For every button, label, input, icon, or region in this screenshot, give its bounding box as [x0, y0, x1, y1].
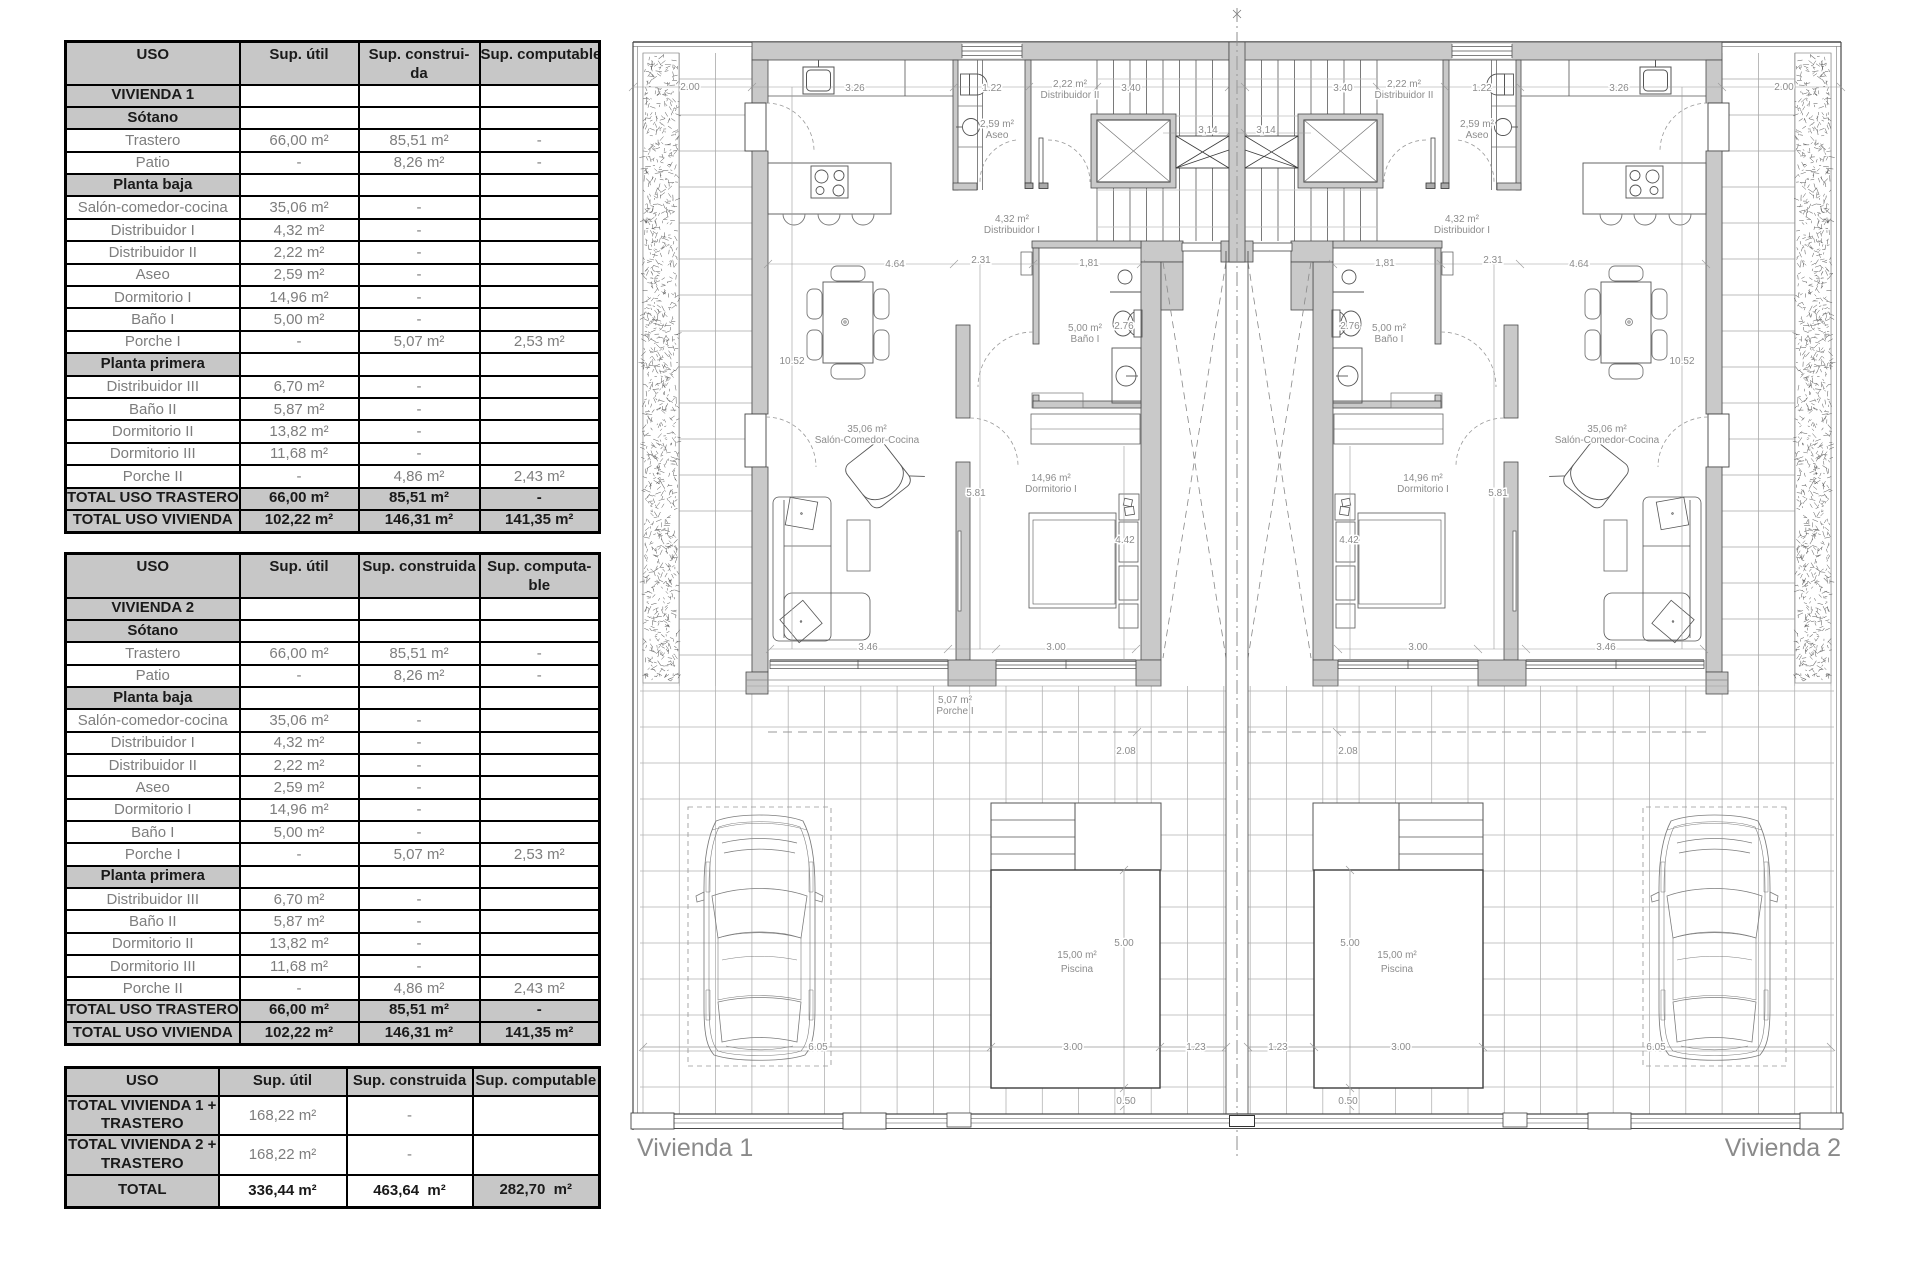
svg-text:2.76: 2.76 — [1340, 321, 1360, 332]
svg-text:4.42: 4.42 — [1115, 535, 1135, 546]
svg-text:Aseo: Aseo — [986, 130, 1009, 141]
svg-text:5.81: 5.81 — [1488, 488, 1508, 499]
svg-text:Distribuidor I: Distribuidor I — [1434, 225, 1490, 236]
svg-text:Distribuidor II: Distribuidor II — [1375, 90, 1434, 101]
svg-text:0.50: 0.50 — [1338, 1096, 1358, 1107]
svg-text:2.31: 2.31 — [971, 255, 991, 266]
svg-text:2,59 m²: 2,59 m² — [1460, 119, 1495, 130]
svg-text:4.42: 4.42 — [1339, 535, 1359, 546]
svg-text:2.31: 2.31 — [1483, 255, 1503, 266]
svg-text:1,81: 1,81 — [1079, 258, 1099, 269]
svg-text:3.00: 3.00 — [1063, 1042, 1083, 1053]
svg-text:5,00 m²: 5,00 m² — [1372, 323, 1407, 334]
svg-text:14,96 m²: 14,96 m² — [1031, 473, 1071, 484]
svg-text:10.52: 10.52 — [1669, 356, 1694, 367]
svg-text:2,22 m²: 2,22 m² — [1387, 79, 1422, 90]
svg-text:3,14: 3,14 — [1256, 125, 1276, 136]
svg-text:3.26: 3.26 — [845, 83, 865, 94]
svg-text:14,96 m²: 14,96 m² — [1403, 473, 1443, 484]
svg-text:3.26: 3.26 — [1609, 83, 1629, 94]
svg-text:3.40: 3.40 — [1121, 83, 1141, 94]
svg-text:Vivienda 2: Vivienda 2 — [1725, 1134, 1841, 1162]
svg-text:4,32 m²: 4,32 m² — [1445, 214, 1480, 225]
svg-text:10.52: 10.52 — [779, 356, 804, 367]
svg-text:15,00 m²: 15,00 m² — [1377, 950, 1417, 961]
svg-text:5.00: 5.00 — [1114, 938, 1134, 949]
svg-text:Piscina: Piscina — [1061, 964, 1094, 975]
svg-text:Dormitorio I: Dormitorio I — [1397, 484, 1449, 495]
svg-text:35,06 m²: 35,06 m² — [1587, 424, 1627, 435]
svg-text:Baño I: Baño I — [1375, 334, 1404, 345]
svg-text:1.23: 1.23 — [1186, 1042, 1206, 1053]
svg-text:Salón-Comedor-Cocina: Salón-Comedor-Cocina — [815, 435, 920, 446]
svg-text:4.64: 4.64 — [885, 259, 905, 270]
svg-text:2.76: 2.76 — [1114, 321, 1134, 332]
svg-text:15,00 m²: 15,00 m² — [1057, 950, 1097, 961]
svg-text:2.00: 2.00 — [680, 82, 700, 93]
svg-text:5.81: 5.81 — [966, 488, 986, 499]
svg-text:Salón-Comedor-Cocina: Salón-Comedor-Cocina — [1555, 435, 1660, 446]
svg-text:Aseo: Aseo — [1466, 130, 1489, 141]
svg-text:Distribuidor I: Distribuidor I — [984, 225, 1040, 236]
svg-text:3.00: 3.00 — [1391, 1042, 1411, 1053]
svg-text:3,14: 3,14 — [1198, 125, 1218, 136]
svg-text:1,81: 1,81 — [1375, 258, 1395, 269]
svg-text:3.00: 3.00 — [1408, 642, 1428, 653]
svg-text:3.00: 3.00 — [1046, 642, 1066, 653]
svg-text:2.08: 2.08 — [1338, 746, 1358, 757]
svg-text:Baño I: Baño I — [1071, 334, 1100, 345]
svg-text:6.05: 6.05 — [1646, 1042, 1666, 1053]
svg-text:4,32 m²: 4,32 m² — [995, 214, 1030, 225]
svg-text:3.46: 3.46 — [1596, 642, 1616, 653]
svg-text:0.50: 0.50 — [1116, 1096, 1136, 1107]
svg-text:Piscina: Piscina — [1381, 964, 1414, 975]
svg-text:5,00 m²: 5,00 m² — [1068, 323, 1103, 334]
svg-text:5,07 m²: 5,07 m² — [938, 695, 973, 706]
svg-text:1.22: 1.22 — [982, 83, 1002, 94]
svg-text:Porche I: Porche I — [936, 706, 973, 717]
svg-text:2,59 m²: 2,59 m² — [980, 119, 1015, 130]
svg-text:35,06 m²: 35,06 m² — [847, 424, 887, 435]
svg-text:1.23: 1.23 — [1268, 1042, 1288, 1053]
svg-text:2.08: 2.08 — [1116, 746, 1136, 757]
svg-text:4.64: 4.64 — [1569, 259, 1589, 270]
svg-text:5.00: 5.00 — [1340, 938, 1360, 949]
svg-text:Dormitorio I: Dormitorio I — [1025, 484, 1077, 495]
svg-text:6.05: 6.05 — [808, 1042, 828, 1053]
svg-text:1.22: 1.22 — [1472, 83, 1492, 94]
svg-text:Distribuidor II: Distribuidor II — [1041, 90, 1100, 101]
svg-text:3.40: 3.40 — [1333, 83, 1353, 94]
svg-text:Vivienda 1: Vivienda 1 — [637, 1134, 753, 1162]
svg-text:2.00: 2.00 — [1774, 82, 1794, 93]
svg-text:2,22 m²: 2,22 m² — [1053, 79, 1088, 90]
svg-text:3.46: 3.46 — [858, 642, 878, 653]
